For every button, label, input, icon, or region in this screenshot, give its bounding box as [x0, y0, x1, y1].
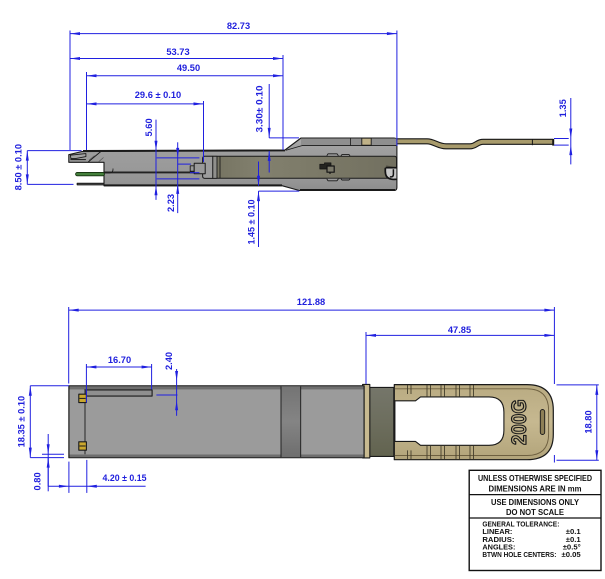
svg-text:47.85: 47.85 [448, 325, 471, 335]
svg-text:USE DIMENSIONS ONLY: USE DIMENSIONS ONLY [491, 498, 579, 507]
svg-text:200G: 200G [507, 399, 531, 445]
svg-text:82.73: 82.73 [227, 21, 250, 31]
svg-text:0.80: 0.80 [32, 472, 42, 490]
svg-text:1.35: 1.35 [558, 99, 568, 117]
svg-text:2.23: 2.23 [166, 194, 176, 212]
svg-text:3.30± 0.10: 3.30± 0.10 [255, 86, 265, 133]
svg-text:53.73: 53.73 [166, 47, 189, 57]
svg-text:49.50: 49.50 [177, 63, 200, 73]
svg-text:8.50 ± 0.10: 8.50 ± 0.10 [14, 144, 24, 190]
svg-text:DO NOT SCALE: DO NOT SCALE [506, 508, 564, 517]
svg-text:121.88: 121.88 [297, 297, 325, 307]
svg-text:DIMENSIONS ARE IN mm: DIMENSIONS ARE IN mm [489, 484, 582, 493]
svg-text:29.6 ± 0.10: 29.6 ± 0.10 [135, 90, 181, 100]
svg-text:5.60: 5.60 [144, 118, 154, 136]
svg-text:18.80: 18.80 [584, 410, 594, 433]
svg-text:2.40: 2.40 [164, 352, 174, 370]
svg-text:UNLESS OTHERWISE SPECIFIED: UNLESS OTHERWISE SPECIFIED [478, 474, 592, 483]
svg-text:BTWN HOLE CENTERS:: BTWN HOLE CENTERS: [482, 550, 556, 559]
svg-text:1.45 ± 0.10: 1.45 ± 0.10 [247, 200, 257, 245]
svg-text:18.35 ± 0.10: 18.35 ± 0.10 [17, 396, 27, 448]
svg-text:16.70: 16.70 [108, 355, 131, 365]
svg-text:±0.05: ±0.05 [562, 550, 582, 559]
svg-text:4.20 ± 0.15: 4.20 ± 0.15 [103, 473, 147, 483]
